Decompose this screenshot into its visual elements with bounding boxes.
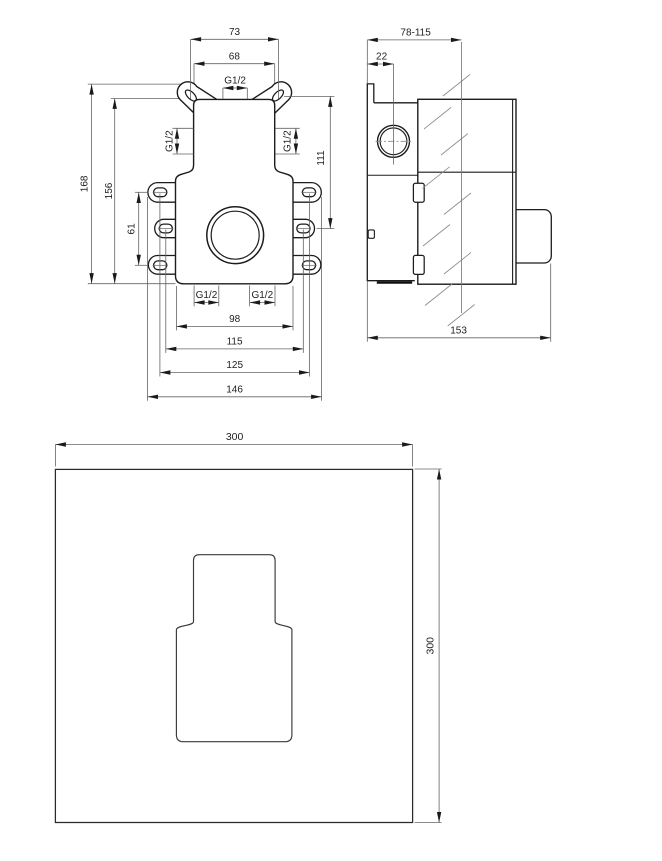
svg-text:98: 98 xyxy=(229,314,241,325)
svg-text:146: 146 xyxy=(226,385,243,396)
svg-text:115: 115 xyxy=(227,337,243,348)
svg-text:111: 111 xyxy=(316,150,327,166)
svg-text:G1/2: G1/2 xyxy=(196,290,218,301)
svg-text:G1/2: G1/2 xyxy=(224,76,246,87)
svg-text:G1/2: G1/2 xyxy=(165,130,176,152)
svg-text:G1/2: G1/2 xyxy=(251,290,273,301)
svg-text:300: 300 xyxy=(226,431,244,443)
svg-text:61: 61 xyxy=(127,223,138,235)
svg-text:68: 68 xyxy=(229,51,241,62)
svg-text:156: 156 xyxy=(104,182,115,199)
svg-text:153: 153 xyxy=(450,326,467,337)
svg-text:G1/2: G1/2 xyxy=(283,130,294,152)
svg-text:125: 125 xyxy=(226,360,243,371)
svg-text:73: 73 xyxy=(229,27,241,38)
svg-text:168: 168 xyxy=(79,175,90,192)
svg-text:22: 22 xyxy=(376,52,388,63)
svg-text:300: 300 xyxy=(425,637,437,655)
svg-text:78-115: 78-115 xyxy=(400,28,431,39)
